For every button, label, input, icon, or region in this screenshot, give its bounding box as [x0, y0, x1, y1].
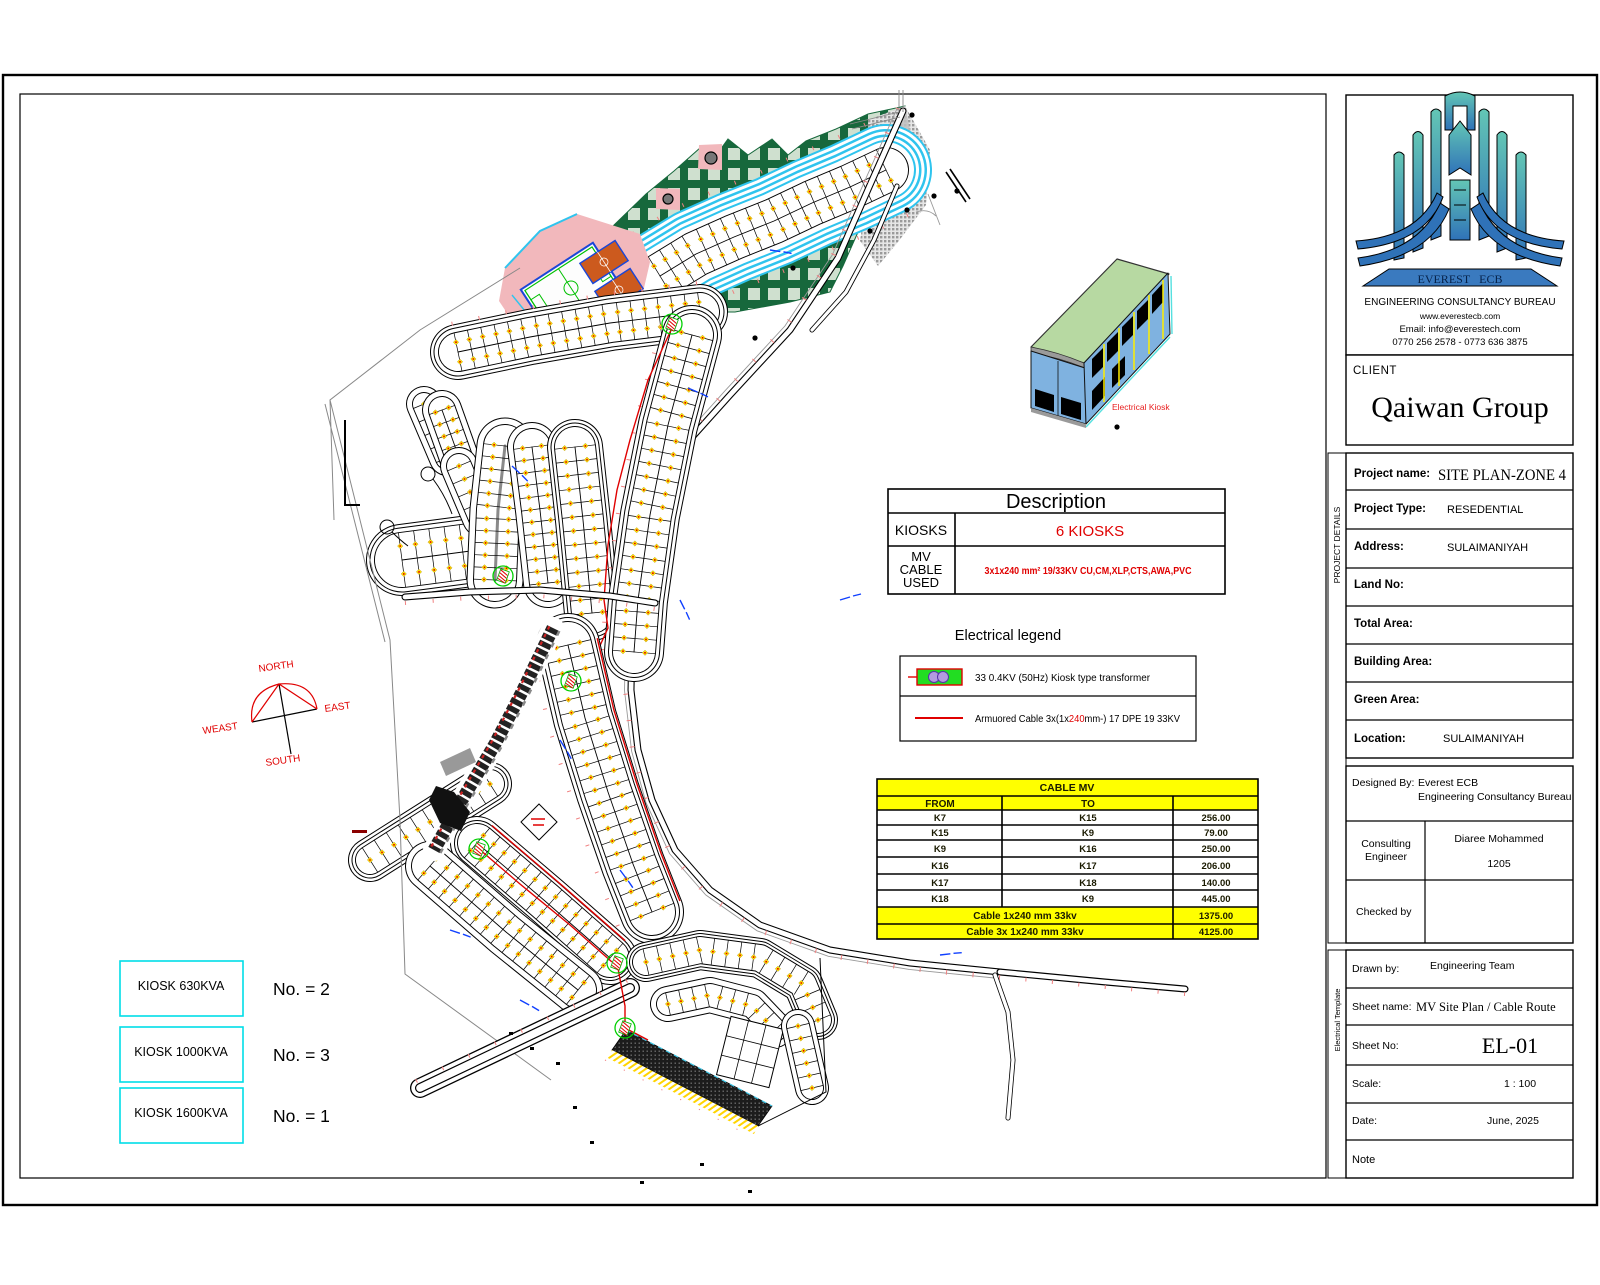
svg-text:SULAIMANIYAH: SULAIMANIYAH	[1447, 542, 1528, 554]
svg-text:K9: K9	[1082, 828, 1094, 839]
svg-text:Project name:: Project name:	[1354, 468, 1430, 480]
svg-text:Engineering Consultancy Bureau: Engineering Consultancy Bureau	[1418, 791, 1572, 803]
svg-text:EL-01: EL-01	[1482, 1033, 1538, 1058]
svg-text:K16: K16	[931, 861, 948, 872]
svg-text:Scale:: Scale:	[1352, 1078, 1381, 1090]
svg-text:1 : 100: 1 : 100	[1504, 1078, 1536, 1090]
svg-text:Diaree Mohammed: Diaree Mohammed	[1454, 833, 1543, 845]
svg-text:Green Area:: Green Area:	[1354, 694, 1419, 706]
svg-text:445.00: 445.00	[1201, 894, 1230, 905]
svg-text:Cable 3x 1x240 mm 33kv: Cable 3x 1x240 mm 33kv	[966, 927, 1084, 938]
svg-text:K7: K7	[934, 813, 946, 824]
svg-text:K17: K17	[1079, 861, 1096, 872]
svg-text:KIOSK 1000KVA: KIOSK 1000KVA	[134, 1045, 228, 1059]
svg-text:CLIENT: CLIENT	[1353, 365, 1397, 377]
svg-text:Electrical legend: Electrical legend	[955, 628, 1061, 644]
svg-text:No. = 3: No. = 3	[273, 1045, 330, 1065]
svg-text:MV Site Plan / Cable Route: MV Site Plan / Cable Route	[1416, 1000, 1556, 1014]
svg-text:250.00: 250.00	[1201, 844, 1230, 855]
svg-text:79.00: 79.00	[1204, 828, 1228, 839]
svg-text:Armuored Cable 3x(1x240mm-) 17: Armuored Cable 3x(1x240mm-) 17 DPE 19 33…	[975, 714, 1180, 725]
svg-text:ENGINEERING CONSULTANCY BUREAU: ENGINEERING CONSULTANCY BUREAU	[1364, 297, 1555, 308]
svg-text:No. = 2: No. = 2	[273, 979, 330, 999]
svg-text:www.everestecb.com: www.everestecb.com	[1419, 311, 1500, 321]
svg-text:33 0.4KV (50Hz) Kiosk type t: 33 0.4KV (50Hz) Kiosk type transformer	[975, 672, 1150, 684]
svg-text:RESEDENTIAL: RESEDENTIAL	[1447, 504, 1523, 516]
svg-text:K16: K16	[1079, 844, 1096, 855]
svg-text:256.00: 256.00	[1201, 813, 1230, 824]
svg-text:Cable 1x240 mm 33kv: Cable 1x240 mm 33kv	[973, 911, 1077, 922]
svg-text:K18: K18	[1079, 878, 1096, 889]
svg-text:Note: Note	[1352, 1154, 1375, 1166]
svg-text:6 KIOSKS: 6 KIOSKS	[1056, 523, 1124, 540]
svg-text:Electrical Template: Electrical Template	[1333, 989, 1342, 1052]
svg-text:Building Area:: Building Area:	[1354, 656, 1432, 668]
svg-text:Address:: Address:	[1354, 541, 1404, 553]
svg-text:206.00: 206.00	[1201, 861, 1230, 872]
svg-text:Engineer: Engineer	[1365, 851, 1408, 863]
svg-text:KIOSKS: KIOSKS	[895, 522, 947, 538]
svg-text:EVEREST ECB: EVEREST ECB	[1417, 272, 1502, 286]
svg-text:Date:: Date:	[1352, 1115, 1377, 1127]
svg-text:Consulting: Consulting	[1361, 838, 1411, 850]
svg-text:USED: USED	[903, 575, 939, 590]
svg-text:K9: K9	[1082, 894, 1094, 905]
svg-text:Engineering Team: Engineering Team	[1430, 960, 1515, 972]
svg-text:Sheet No:: Sheet No:	[1352, 1040, 1399, 1052]
svg-text:1375.00: 1375.00	[1199, 911, 1233, 922]
svg-text:KIOSK 1600KVA: KIOSK 1600KVA	[134, 1106, 228, 1120]
svg-text:Everest ECB: Everest ECB	[1418, 777, 1478, 789]
svg-text:CABLE MV: CABLE MV	[1040, 782, 1095, 794]
svg-text:KIOSK 630KVA: KIOSK 630KVA	[138, 979, 225, 993]
svg-text:Location:: Location:	[1354, 733, 1406, 745]
svg-text:June, 2025: June, 2025	[1487, 1115, 1539, 1127]
svg-text:K15: K15	[931, 828, 949, 839]
svg-text:SITE PLAN-ZONE 4: SITE PLAN-ZONE 4	[1438, 467, 1566, 484]
svg-text:Land No:: Land No:	[1354, 579, 1404, 591]
svg-text:K9: K9	[934, 844, 946, 855]
svg-text:TO: TO	[1081, 799, 1095, 810]
svg-text:K18: K18	[931, 894, 948, 905]
svg-text:3x1x240 mm² 19/33KV CU,CM,XLP,: 3x1x240 mm² 19/33KV CU,CM,XLP,CTS,AWA,PV…	[985, 565, 1192, 577]
svg-text:Checked by: Checked by	[1356, 906, 1412, 918]
svg-text:K17: K17	[931, 878, 948, 889]
svg-text:Project Type:: Project Type:	[1354, 503, 1426, 515]
svg-text:Designed By:: Designed By:	[1352, 777, 1414, 789]
svg-text:1205: 1205	[1487, 858, 1511, 870]
svg-text:140.00: 140.00	[1201, 878, 1230, 889]
svg-text:FROM: FROM	[925, 799, 954, 810]
svg-text:Total Area:: Total Area:	[1354, 618, 1413, 630]
svg-text:SULAIMANIYAH: SULAIMANIYAH	[1443, 733, 1524, 745]
svg-text:Qaiwan Group: Qaiwan Group	[1371, 391, 1548, 424]
svg-text:Electrical Kiosk: Electrical Kiosk	[1112, 402, 1170, 412]
svg-text:0770 256 2578 - 0773 636 3875: 0770 256 2578 - 0773 636 3875	[1392, 337, 1527, 348]
svg-text:Email: info@everestech.com: Email: info@everestech.com	[1399, 324, 1520, 335]
svg-text:PROJECT DETAILS: PROJECT DETAILS	[1332, 506, 1342, 583]
svg-text:Sheet name:: Sheet name:	[1352, 1001, 1412, 1013]
svg-text:K15: K15	[1079, 813, 1097, 824]
svg-text:No. = 1: No. = 1	[273, 1106, 330, 1126]
svg-text:4125.00: 4125.00	[1199, 927, 1233, 938]
svg-text:Drawn by:: Drawn by:	[1352, 963, 1399, 975]
svg-text:Description: Description	[1006, 491, 1106, 513]
